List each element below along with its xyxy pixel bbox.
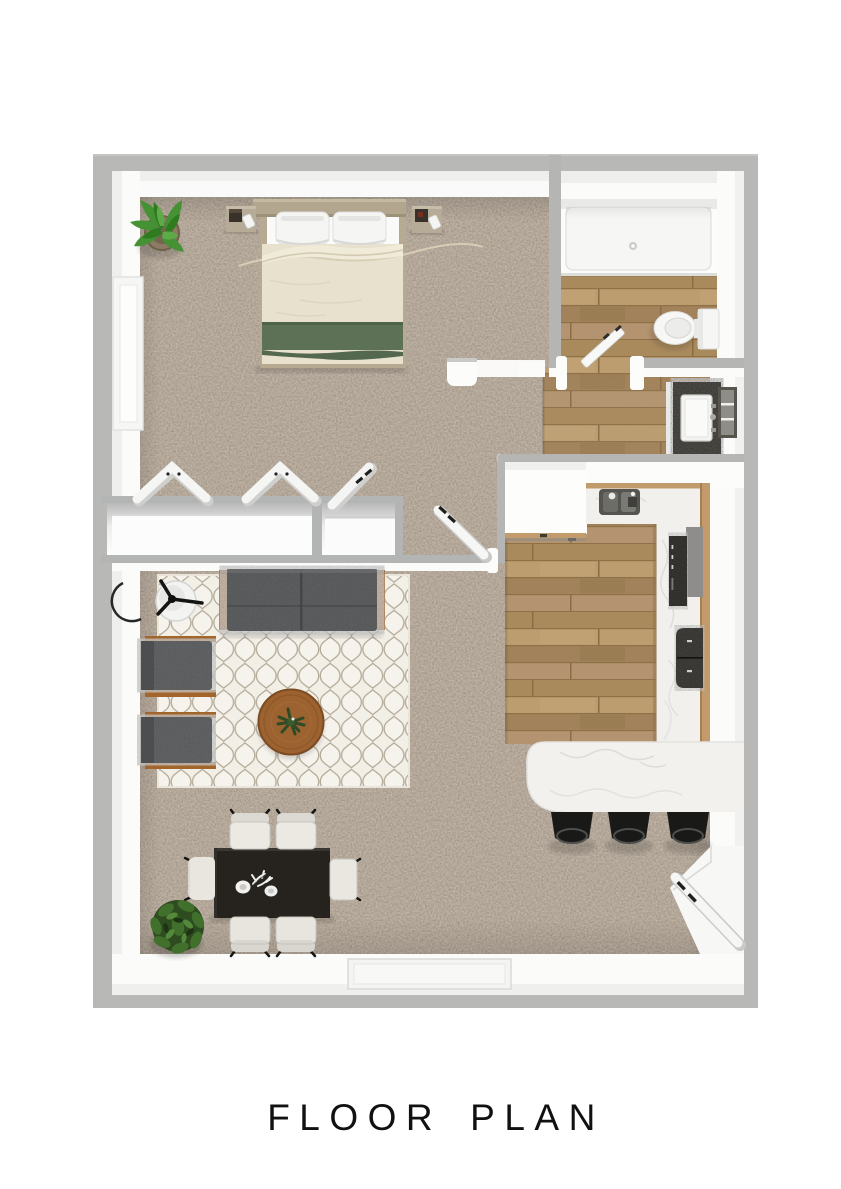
svg-text:FLOOR PLAN: FLOOR PLAN	[267, 1097, 605, 1138]
